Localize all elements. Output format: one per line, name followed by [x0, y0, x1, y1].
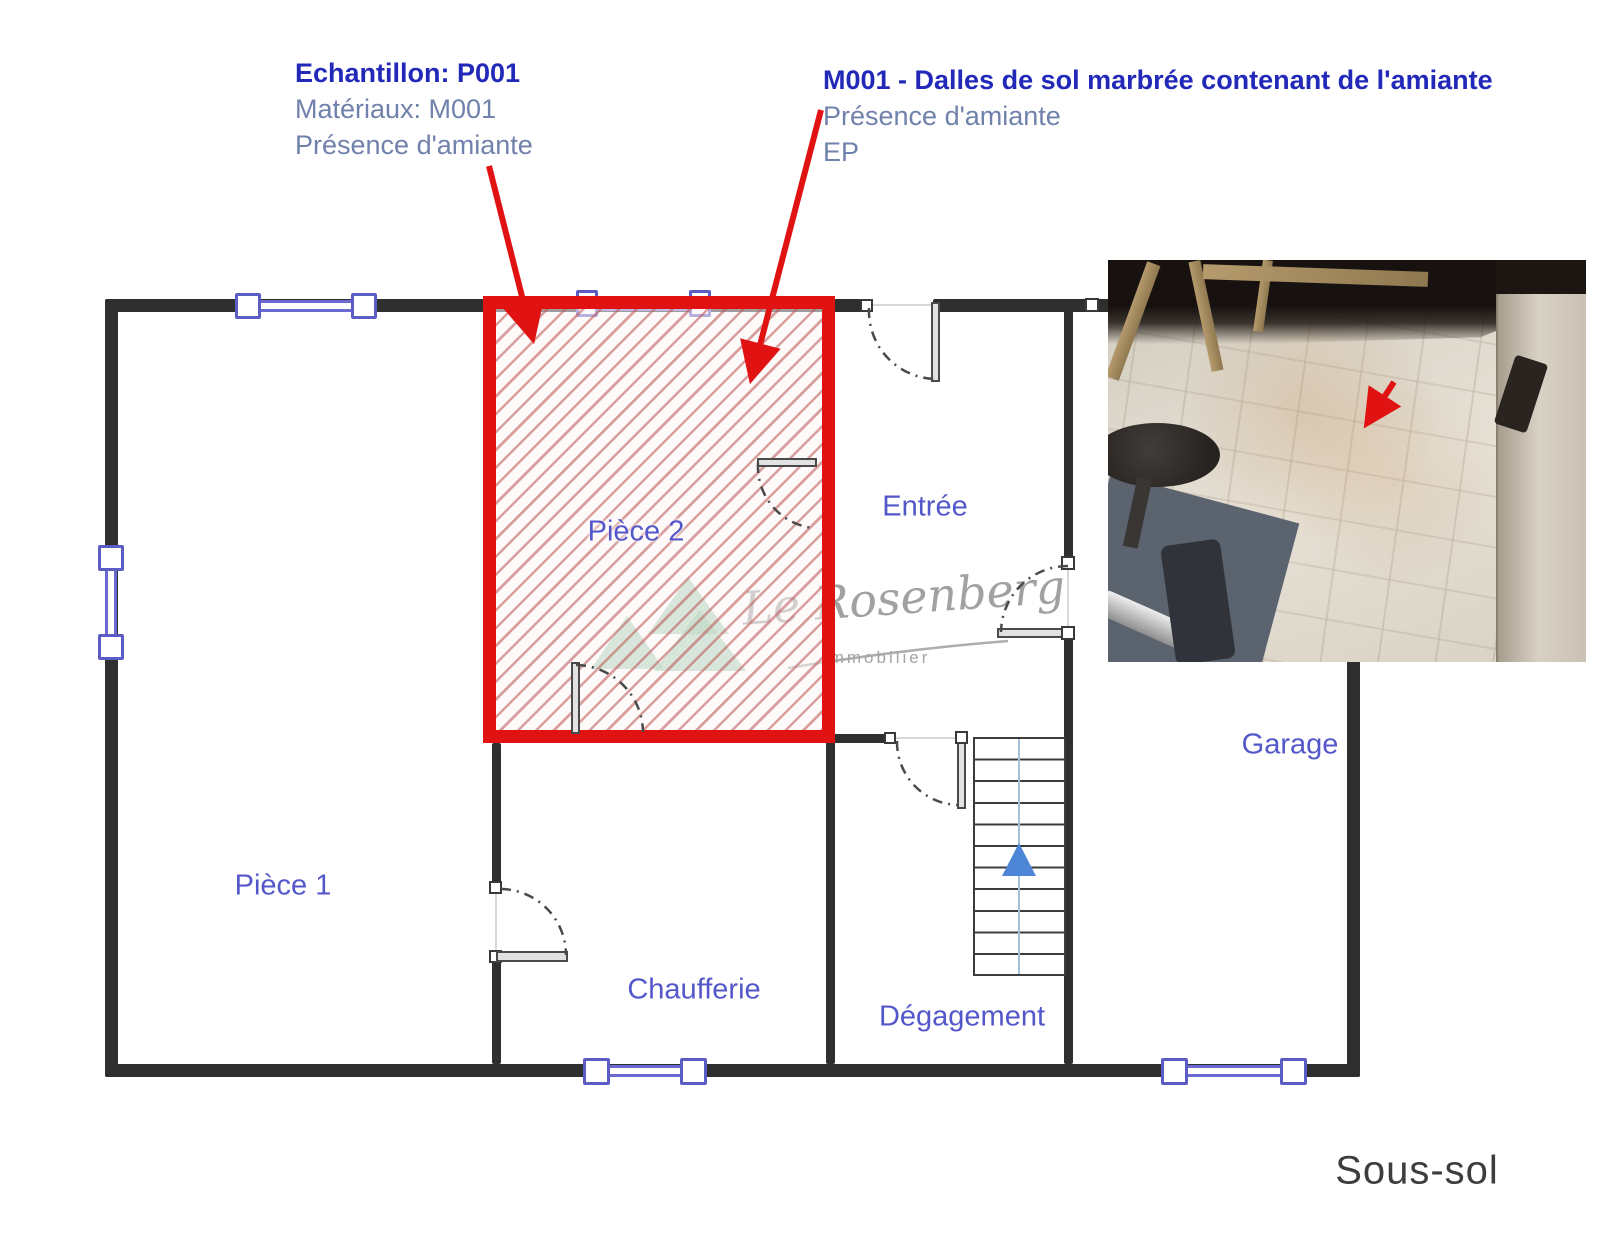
sample-red-arrow-icon	[489, 166, 532, 336]
material-annotation-presence: Présence d'amiante	[823, 98, 1493, 134]
sample-annotation-title: Echantillon: P001	[295, 55, 533, 91]
asbestos-floor-photo	[1108, 260, 1586, 662]
material-red-arrow-icon	[752, 110, 821, 376]
sample-annotation-presence: Présence d'amiante	[295, 127, 533, 163]
material-annotation-title: M001 - Dalles de sol marbrée contenant d…	[823, 62, 1493, 98]
sample-annotation-material: Matériaux: M001	[295, 91, 533, 127]
floor-name-label: Sous-sol	[1335, 1149, 1499, 1194]
floor-plan-page: Le Rosenberg Immobilier Pièce 1 Pièce 2 …	[0, 0, 1600, 1250]
material-annotation-ep: EP	[823, 134, 1493, 170]
photo-red-arrow-icon	[1368, 382, 1394, 422]
photo-arrow-layer	[1108, 260, 1586, 662]
material-annotation: M001 - Dalles de sol marbrée contenant d…	[823, 62, 1493, 170]
sample-annotation: Echantillon: P001 Matériaux: M001 Présen…	[295, 55, 533, 163]
